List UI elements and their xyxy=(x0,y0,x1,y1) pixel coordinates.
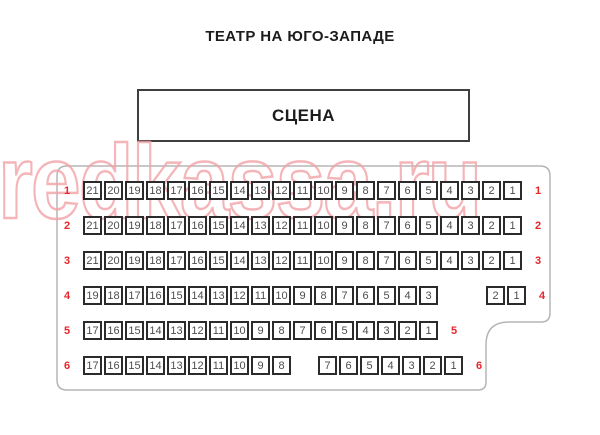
seat-row4-n13[interactable]: 13 xyxy=(209,286,228,305)
seat-row1-n17[interactable]: 17 xyxy=(167,181,186,200)
aisle-gap xyxy=(293,365,316,366)
seat-row5-n9[interactable]: 9 xyxy=(251,321,270,340)
seat-row5-n3[interactable]: 3 xyxy=(377,321,396,340)
seat-row6-n14[interactable]: 14 xyxy=(146,356,165,375)
page-title: ТЕАТР НА ЮГО-ЗАПАДЕ xyxy=(0,28,600,45)
seat-row3-n20[interactable]: 20 xyxy=(104,251,123,270)
seat-row1-n4[interactable]: 4 xyxy=(440,181,459,200)
seat-row5-n13[interactable]: 13 xyxy=(167,321,186,340)
seat-row4-n16[interactable]: 16 xyxy=(146,286,165,305)
seat-row3-n14[interactable]: 14 xyxy=(230,251,249,270)
seat-row2-n11[interactable]: 11 xyxy=(293,216,312,235)
seat-row3-n8[interactable]: 8 xyxy=(356,251,375,270)
seat-row1-n15[interactable]: 15 xyxy=(209,181,228,200)
row-label-left-5: 5 xyxy=(60,325,74,337)
seat-row1-n8[interactable]: 8 xyxy=(356,181,375,200)
seat-row3-n11[interactable]: 11 xyxy=(293,251,312,270)
seat-row1-n12[interactable]: 12 xyxy=(272,181,291,200)
seat-row3-n6[interactable]: 6 xyxy=(398,251,417,270)
seat-row3-n21[interactable]: 21 xyxy=(83,251,102,270)
seat-row4-n2[interactable]: 2 xyxy=(486,286,505,305)
seat-row1-n13[interactable]: 13 xyxy=(251,181,270,200)
row-label-right-5: 5 xyxy=(447,325,461,337)
seat-row4-n5[interactable]: 5 xyxy=(377,286,396,305)
seat-row3-n19[interactable]: 19 xyxy=(125,251,144,270)
seat-row-4: 4191817161514131211109876543214 xyxy=(60,286,549,305)
seat-row-2: 22120191817161514131211109876543212 xyxy=(60,216,545,235)
row-label-left-2: 2 xyxy=(60,220,74,232)
seat-row4-n19[interactable]: 19 xyxy=(83,286,102,305)
seat-row2-n2[interactable]: 2 xyxy=(482,216,501,235)
seat-row3-n5[interactable]: 5 xyxy=(419,251,438,270)
stage-box: СЦЕНА xyxy=(137,89,470,142)
seat-row2-n15[interactable]: 15 xyxy=(209,216,228,235)
seat-row6-n15[interactable]: 15 xyxy=(125,356,144,375)
seat-row-1: 12120191817161514131211109876543211 xyxy=(60,181,545,200)
seat-row3-n4[interactable]: 4 xyxy=(440,251,459,270)
seat-row6-n2[interactable]: 2 xyxy=(423,356,442,375)
seat-row5-n2[interactable]: 2 xyxy=(398,321,417,340)
seat-row6-n11[interactable]: 11 xyxy=(209,356,228,375)
seat-row5-n17[interactable]: 17 xyxy=(83,321,102,340)
seat-row1-n5[interactable]: 5 xyxy=(419,181,438,200)
row-label-left-1: 1 xyxy=(60,185,74,197)
seat-row6-n3[interactable]: 3 xyxy=(402,356,421,375)
row-label-right-1: 1 xyxy=(531,185,545,197)
seat-row1-n7[interactable]: 7 xyxy=(377,181,396,200)
seat-row4-n11[interactable]: 11 xyxy=(251,286,270,305)
seat-row3-n15[interactable]: 15 xyxy=(209,251,228,270)
row-label-right-3: 3 xyxy=(531,255,545,267)
seat-row1-n21[interactable]: 21 xyxy=(83,181,102,200)
seat-row2-n16[interactable]: 16 xyxy=(188,216,207,235)
seat-row4-n14[interactable]: 14 xyxy=(188,286,207,305)
seat-row3-n16[interactable]: 16 xyxy=(188,251,207,270)
seat-row2-n7[interactable]: 7 xyxy=(377,216,396,235)
seat-row6-n1[interactable]: 1 xyxy=(444,356,463,375)
seat-row4-n17[interactable]: 17 xyxy=(125,286,144,305)
seat-row3-n3[interactable]: 3 xyxy=(461,251,480,270)
seat-row3-n7[interactable]: 7 xyxy=(377,251,396,270)
seat-row2-n20[interactable]: 20 xyxy=(104,216,123,235)
seat-row2-n6[interactable]: 6 xyxy=(398,216,417,235)
seat-row6-n9[interactable]: 9 xyxy=(251,356,270,375)
seat-row4-n6[interactable]: 6 xyxy=(356,286,375,305)
seat-row4-n3[interactable]: 3 xyxy=(419,286,438,305)
seat-row1-n2[interactable]: 2 xyxy=(482,181,501,200)
seat-row2-n8[interactable]: 8 xyxy=(356,216,375,235)
row-label-right-6: 6 xyxy=(472,360,486,372)
seat-row2-n10[interactable]: 10 xyxy=(314,216,333,235)
seat-row2-n13[interactable]: 13 xyxy=(251,216,270,235)
seat-row6-n5[interactable]: 5 xyxy=(360,356,379,375)
seat-row3-n10[interactable]: 10 xyxy=(314,251,333,270)
seat-row3-n18[interactable]: 18 xyxy=(146,251,165,270)
seat-row5-n14[interactable]: 14 xyxy=(146,321,165,340)
seat-row1-n6[interactable]: 6 xyxy=(398,181,417,200)
seat-row5-n10[interactable]: 10 xyxy=(230,321,249,340)
seat-row4-n15[interactable]: 15 xyxy=(167,286,186,305)
seat-row2-n12[interactable]: 12 xyxy=(272,216,291,235)
seat-row1-n18[interactable]: 18 xyxy=(146,181,165,200)
seat-row5-n4[interactable]: 4 xyxy=(356,321,375,340)
seat-row6-n10[interactable]: 10 xyxy=(230,356,249,375)
seat-row5-n15[interactable]: 15 xyxy=(125,321,144,340)
aisle-gap xyxy=(440,295,484,296)
seat-row5-n12[interactable]: 12 xyxy=(188,321,207,340)
seat-row6-n13[interactable]: 13 xyxy=(167,356,186,375)
row-label-right-4: 4 xyxy=(535,290,549,302)
seat-row5-n16[interactable]: 16 xyxy=(104,321,123,340)
seat-row-3: 32120191817161514131211109876543213 xyxy=(60,251,545,270)
seat-row2-n5[interactable]: 5 xyxy=(419,216,438,235)
seat-row1-n20[interactable]: 20 xyxy=(104,181,123,200)
seat-row3-n13[interactable]: 13 xyxy=(251,251,270,270)
seat-row4-n18[interactable]: 18 xyxy=(104,286,123,305)
seat-row1-n1[interactable]: 1 xyxy=(503,181,522,200)
seat-row2-n19[interactable]: 19 xyxy=(125,216,144,235)
seat-row4-n9[interactable]: 9 xyxy=(293,286,312,305)
seat-row4-n1[interactable]: 1 xyxy=(507,286,526,305)
seat-row1-n11[interactable]: 11 xyxy=(293,181,312,200)
seat-row1-n16[interactable]: 16 xyxy=(188,181,207,200)
seat-row6-n17[interactable]: 17 xyxy=(83,356,102,375)
seat-row5-n1[interactable]: 1 xyxy=(419,321,438,340)
seat-row6-n16[interactable]: 16 xyxy=(104,356,123,375)
seat-row3-n1[interactable]: 1 xyxy=(503,251,522,270)
seat-row2-n4[interactable]: 4 xyxy=(440,216,459,235)
seat-row3-n12[interactable]: 12 xyxy=(272,251,291,270)
seat-row4-n8[interactable]: 8 xyxy=(314,286,333,305)
seat-row2-n3[interactable]: 3 xyxy=(461,216,480,235)
seat-row2-n9[interactable]: 9 xyxy=(335,216,354,235)
row-label-left-4: 4 xyxy=(60,290,74,302)
seat-row3-n9[interactable]: 9 xyxy=(335,251,354,270)
seat-row5-n8[interactable]: 8 xyxy=(272,321,291,340)
seat-row4-n7[interactable]: 7 xyxy=(335,286,354,305)
seat-row-5: 517161514131211109876543215 xyxy=(60,321,461,340)
seat-row4-n4[interactable]: 4 xyxy=(398,286,417,305)
seat-row5-n6[interactable]: 6 xyxy=(314,321,333,340)
seat-row1-n19[interactable]: 19 xyxy=(125,181,144,200)
seat-row2-n18[interactable]: 18 xyxy=(146,216,165,235)
seat-row3-n2[interactable]: 2 xyxy=(482,251,501,270)
seat-row-6: 617161514131211109876543216 xyxy=(60,356,486,375)
seat-row6-n4[interactable]: 4 xyxy=(381,356,400,375)
seat-row5-n7[interactable]: 7 xyxy=(293,321,312,340)
seat-row4-n12[interactable]: 12 xyxy=(230,286,249,305)
seat-row1-n9[interactable]: 9 xyxy=(335,181,354,200)
seat-row6-n8[interactable]: 8 xyxy=(272,356,291,375)
seat-row2-n14[interactable]: 14 xyxy=(230,216,249,235)
seat-row1-n14[interactable]: 14 xyxy=(230,181,249,200)
row-label-left-3: 3 xyxy=(60,255,74,267)
seat-row1-n3[interactable]: 3 xyxy=(461,181,480,200)
stage-label: СЦЕНА xyxy=(272,106,335,126)
row-label-left-6: 6 xyxy=(60,360,74,372)
seat-row2-n1[interactable]: 1 xyxy=(503,216,522,235)
seat-row4-n10[interactable]: 10 xyxy=(272,286,291,305)
seat-row6-n7[interactable]: 7 xyxy=(318,356,337,375)
seat-row2-n17[interactable]: 17 xyxy=(167,216,186,235)
seat-row3-n17[interactable]: 17 xyxy=(167,251,186,270)
seat-row1-n10[interactable]: 10 xyxy=(314,181,333,200)
row-label-right-2: 2 xyxy=(531,220,545,232)
seat-row5-n11[interactable]: 11 xyxy=(209,321,228,340)
seat-row6-n6[interactable]: 6 xyxy=(339,356,358,375)
seat-row6-n12[interactable]: 12 xyxy=(188,356,207,375)
seat-row2-n21[interactable]: 21 xyxy=(83,216,102,235)
seat-row5-n5[interactable]: 5 xyxy=(335,321,354,340)
